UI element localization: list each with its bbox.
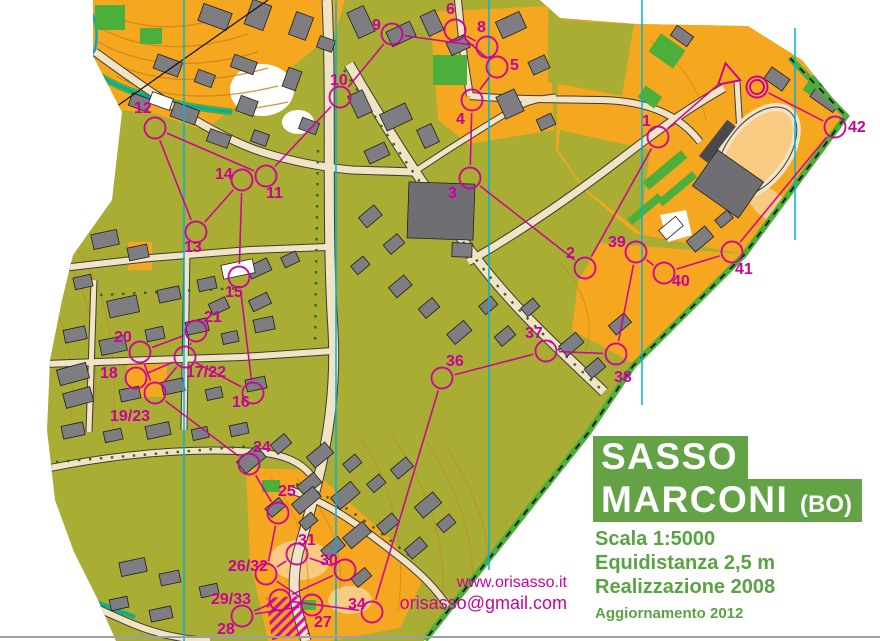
control-number-42: 42 — [848, 119, 866, 136]
control-number-29/33: 29/33 — [211, 591, 251, 608]
control-number-24: 24 — [253, 439, 271, 456]
orienteering-map-page: 123456891011121314151617/221819/23202124… — [0, 0, 880, 641]
email-text: orisasso@gmail.com — [350, 593, 567, 614]
control-number-26/32: 26/32 — [228, 558, 268, 575]
map-update-year: Aggiornamento 2012 — [595, 602, 775, 626]
control-number-37: 37 — [525, 325, 543, 342]
website-text: www.orisasso.it — [350, 572, 567, 593]
control-number-12: 12 — [134, 100, 152, 117]
map-subtitle-block: Scala 1:5000 Equidistanza 2,5 m Realizza… — [595, 527, 775, 626]
control-number-10: 10 — [330, 72, 348, 89]
control-number-2: 2 — [566, 245, 575, 262]
control-number-14: 14 — [215, 166, 233, 183]
bottom-divider — [0, 636, 880, 638]
control-number-25: 25 — [278, 483, 296, 500]
control-number-16: 16 — [232, 394, 250, 411]
control-number-15: 15 — [225, 284, 243, 301]
control-number-17/22: 17/22 — [186, 364, 226, 381]
map-realization-year: Realizzazione 2008 — [595, 575, 775, 599]
map-equidistance: Equidistanza 2,5 m — [595, 551, 775, 575]
control-number-36: 36 — [446, 353, 464, 370]
control-number-9: 9 — [372, 17, 381, 34]
control-number-13: 13 — [184, 239, 202, 256]
control-number-8: 8 — [477, 19, 486, 36]
control-number-39: 39 — [608, 234, 626, 251]
control-number-6: 6 — [446, 1, 455, 18]
control-number-41: 41 — [735, 261, 753, 278]
control-number-40: 40 — [672, 273, 690, 290]
control-number-31: 31 — [298, 532, 316, 549]
map-scale: Scala 1:5000 — [595, 527, 775, 551]
control-number-1: 1 — [642, 113, 651, 130]
map-title-line2: MARCONI (BO) — [593, 479, 862, 522]
contact-block: www.orisasso.it orisasso@gmail.com — [350, 572, 567, 614]
map-title-line1: SASSO — [593, 436, 748, 479]
map-title-block: SASSO MARCONI (BO) — [593, 436, 862, 522]
control-number-11: 11 — [266, 185, 283, 202]
map-title-city: MARCONI — [601, 479, 788, 520]
control-number-19/23: 19/23 — [110, 408, 150, 425]
control-number-18: 18 — [100, 365, 118, 382]
control-number-5: 5 — [510, 57, 519, 74]
control-number-21: 21 — [204, 309, 222, 326]
course-leg-21-17/22 — [190, 343, 191, 345]
control-number-20: 20 — [114, 329, 132, 346]
control-number-30: 30 — [320, 552, 338, 569]
control-number-4: 4 — [456, 111, 465, 128]
control-number-38: 38 — [614, 369, 632, 386]
control-number-27: 27 — [314, 614, 332, 631]
control-number-3: 3 — [448, 185, 457, 202]
map-title-province: (BO) — [800, 491, 852, 518]
